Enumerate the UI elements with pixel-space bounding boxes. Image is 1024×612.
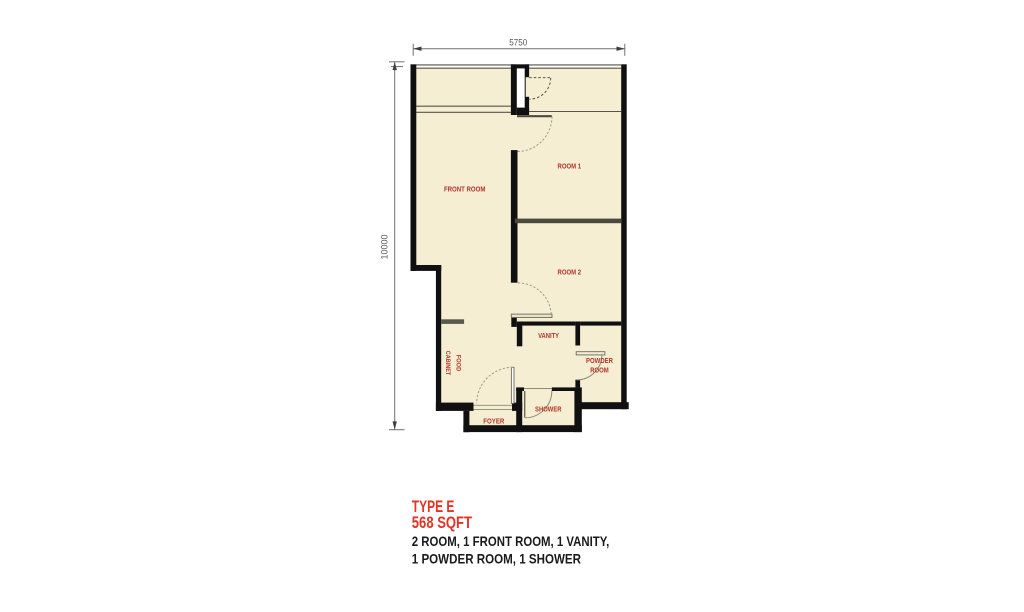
svg-text:FOYER: FOYER: [483, 416, 504, 425]
svg-text:ROOM 1: ROOM 1: [558, 162, 582, 171]
svg-text:5750: 5750: [509, 37, 527, 48]
svg-text:FOOD: FOOD: [454, 355, 461, 372]
svg-text:VANITY: VANITY: [538, 331, 559, 340]
svg-text:POWDER: POWDER: [586, 356, 613, 365]
svg-text:FRONT ROOM: FRONT ROOM: [444, 184, 486, 193]
svg-text:10000: 10000: [380, 235, 391, 260]
svg-text:ROOM: ROOM: [590, 365, 609, 374]
svg-text:ROOM 2: ROOM 2: [558, 267, 582, 276]
svg-text:CABINET: CABINET: [444, 351, 451, 376]
svg-text:1 POWDER ROOM, 1 SHOWER: 1 POWDER ROOM, 1 SHOWER: [412, 552, 581, 567]
svg-text:568 SQFT: 568 SQFT: [412, 513, 473, 532]
svg-text:2 ROOM, 1 FRONT ROOM, 1 VANITY: 2 ROOM, 1 FRONT ROOM, 1 VANITY,: [412, 534, 610, 549]
svg-text:SHOWER: SHOWER: [535, 404, 562, 413]
